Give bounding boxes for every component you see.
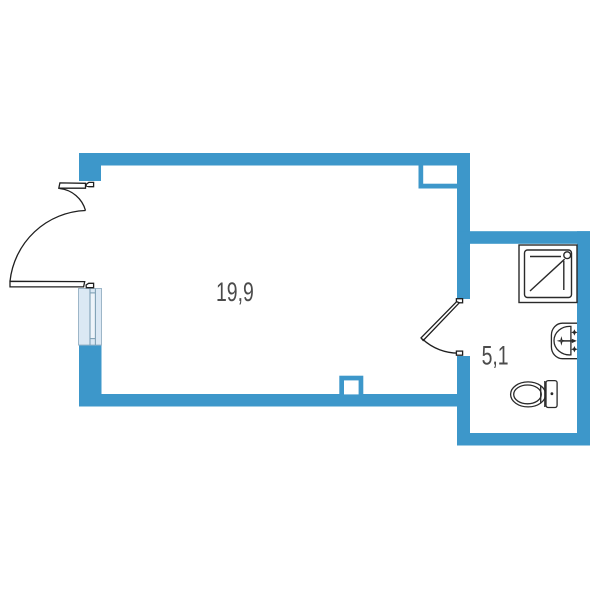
svg-text:19,9: 19,9 xyxy=(216,277,254,307)
svg-text:5,1: 5,1 xyxy=(482,340,509,370)
